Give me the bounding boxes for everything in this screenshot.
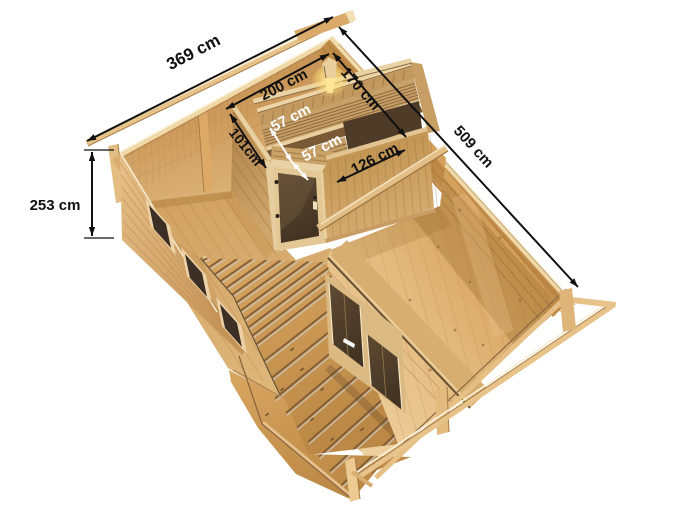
svg-text:253 cm: 253 cm	[30, 197, 81, 214]
